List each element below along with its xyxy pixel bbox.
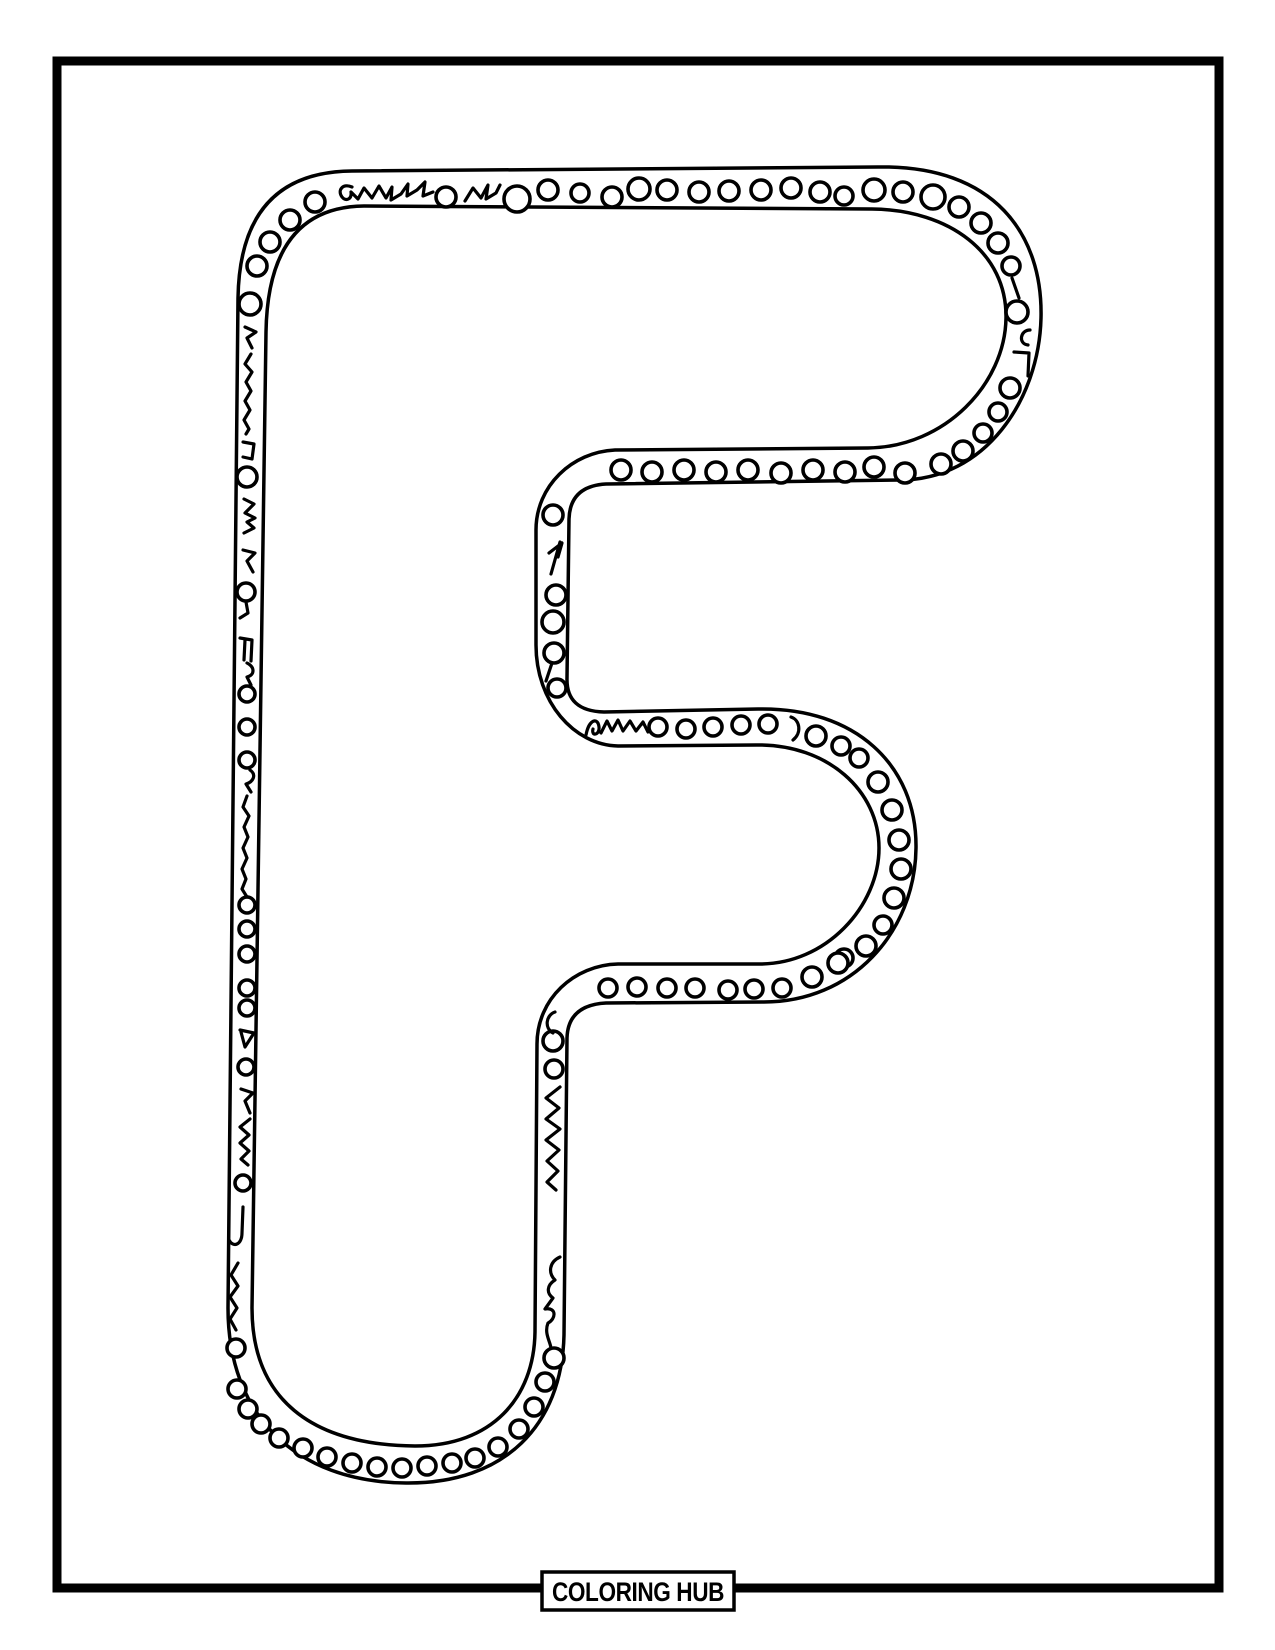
decorative-circle — [706, 462, 726, 482]
decorative-circle — [893, 182, 913, 202]
decorative-circle — [974, 424, 992, 442]
decorative-circle — [832, 737, 850, 755]
decorative-circle — [252, 1415, 270, 1433]
decorative-circle — [239, 293, 261, 315]
decorative-circle — [732, 716, 750, 734]
decorative-circle — [953, 441, 973, 461]
decorative-circle — [227, 1339, 245, 1357]
decorative-circle — [504, 186, 530, 212]
decorative-circle — [864, 457, 884, 477]
decorative-circle — [260, 232, 280, 252]
decorative-circle — [719, 181, 739, 201]
decorative-circle — [971, 213, 991, 233]
decorative-circle — [536, 1373, 554, 1391]
decorative-circle — [544, 643, 564, 663]
decorative-circle — [239, 1400, 257, 1418]
decorative-circle — [599, 979, 617, 997]
decorative-circle — [884, 888, 904, 908]
decorative-circle — [247, 256, 267, 276]
decorative-circle — [874, 916, 892, 934]
decorative-circle — [835, 187, 853, 205]
decorative-circle — [571, 184, 589, 202]
decorative-circle — [538, 180, 558, 200]
decorative-circle — [771, 463, 791, 483]
decorative-circle — [810, 182, 830, 202]
decorative-circle — [988, 233, 1008, 253]
decorative-circle — [294, 1439, 312, 1457]
decorative-circle — [649, 718, 667, 736]
decorative-circle — [806, 726, 826, 746]
decorative-circle — [745, 980, 763, 998]
decorative-circle — [889, 830, 909, 850]
decorative-circle — [658, 979, 676, 997]
coloring-page: COLORING HUB — [0, 0, 1275, 1650]
decorative-circle — [863, 179, 885, 201]
decorative-circle — [239, 980, 255, 996]
decorative-circle — [921, 185, 945, 209]
decorative-circle — [868, 772, 888, 792]
decorative-circle — [1000, 378, 1020, 398]
decorative-circle — [611, 460, 631, 480]
decorative-circle — [237, 583, 255, 601]
decorative-circle — [674, 460, 694, 480]
decorative-circle — [850, 749, 868, 767]
decorative-circle — [1002, 257, 1020, 275]
decorative-circle — [418, 1457, 436, 1475]
decorative-circle — [542, 611, 564, 633]
decorative-circle — [828, 953, 848, 973]
decorative-circle — [436, 187, 456, 207]
decorative-circle — [368, 1458, 386, 1476]
decorative-circle — [525, 1398, 543, 1416]
decorative-circle — [738, 460, 758, 480]
decorative-circle — [657, 180, 677, 200]
decorative-circle — [228, 1380, 246, 1398]
decorative-circle — [891, 859, 911, 879]
decorative-circle — [642, 462, 662, 482]
decorative-circle — [949, 197, 969, 217]
decorative-circle — [686, 979, 704, 997]
decorative-circle — [343, 1454, 361, 1472]
decorative-circle — [545, 1060, 563, 1078]
decorative-circle — [989, 403, 1007, 421]
decorative-circle — [489, 1438, 507, 1456]
decorative-circle — [751, 180, 771, 200]
decorative-circle — [544, 1348, 564, 1368]
decorative-circle — [802, 967, 822, 987]
decorative-circle — [704, 718, 722, 736]
decorative-circle — [239, 686, 255, 702]
decorative-circle — [239, 921, 255, 937]
decorative-circle — [237, 467, 257, 487]
decorative-circle — [628, 178, 650, 200]
decorative-circle — [931, 454, 951, 474]
decorative-circle — [602, 187, 622, 207]
decorative-circle — [677, 720, 695, 738]
decorative-circle — [548, 679, 566, 697]
decorative-circle — [443, 1454, 461, 1472]
decorative-circle — [235, 1175, 251, 1191]
decorative-circle — [773, 979, 791, 997]
decorative-circle — [305, 192, 325, 212]
coloring-page-canvas: COLORING HUB — [0, 0, 1275, 1650]
decorative-circle — [895, 463, 915, 483]
decorative-circle — [270, 1429, 288, 1447]
decorative-circle — [318, 1448, 336, 1466]
decorative-circle — [882, 800, 902, 820]
decorative-circle — [759, 715, 777, 733]
decorative-circle — [239, 719, 255, 735]
decorative-circle — [543, 505, 563, 525]
decorative-circle — [835, 462, 855, 482]
decorative-circle — [239, 897, 255, 913]
decorative-circle — [689, 182, 709, 202]
decorative-circle — [719, 981, 737, 999]
decorative-circle — [238, 1059, 254, 1075]
decorative-circle — [510, 1420, 528, 1438]
decorative-circle — [803, 460, 823, 480]
decorative-circle — [239, 752, 255, 768]
decorative-circle — [239, 1000, 255, 1016]
decorative-circle — [856, 936, 876, 956]
decorative-circle — [280, 210, 300, 230]
decorative-circle — [546, 585, 566, 605]
coloring-hub-label: COLORING HUB — [552, 1577, 724, 1607]
decorative-circle — [781, 178, 801, 198]
decorative-circle — [239, 946, 255, 962]
decorative-circle — [393, 1459, 411, 1477]
decorative-circle — [466, 1449, 484, 1467]
decorative-circle — [1006, 301, 1028, 323]
decorative-circle — [628, 978, 646, 996]
